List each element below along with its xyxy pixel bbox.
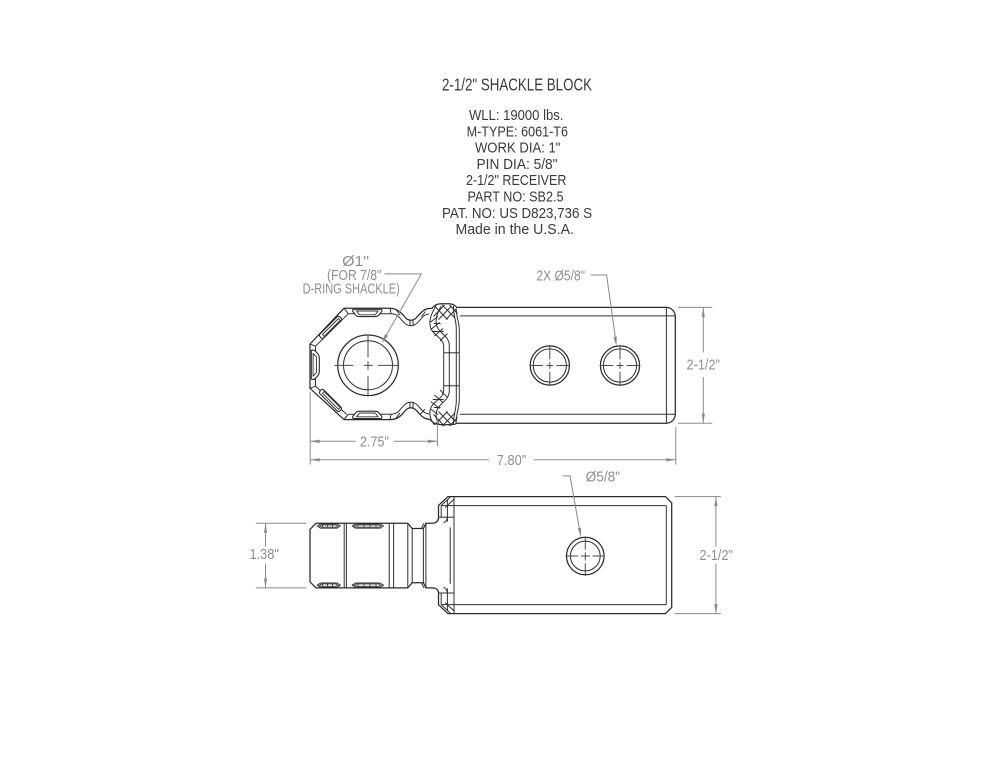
svg-text:7.80": 7.80": [497, 453, 527, 469]
svg-text:Made in the U.S.A.: Made in the U.S.A.: [455, 221, 574, 238]
svg-text:PAT. NO: US D823,736 S: PAT. NO: US D823,736 S: [442, 205, 592, 222]
svg-text:PART NO: SB2.5: PART NO: SB2.5: [468, 189, 564, 206]
svg-text:2X Ø5/8": 2X Ø5/8": [536, 269, 585, 285]
svg-text:PIN DIA: 5/8": PIN DIA: 5/8": [477, 156, 558, 173]
svg-text:2-1/2" SHACKLE BLOCK: 2-1/2" SHACKLE BLOCK: [442, 75, 592, 95]
svg-text:Ø5/8": Ø5/8": [586, 469, 621, 485]
svg-text:2-1/2" RECEIVER: 2-1/2" RECEIVER: [466, 172, 567, 189]
svg-text:2-1/2": 2-1/2": [700, 548, 734, 564]
svg-text:2-1/2": 2-1/2": [687, 358, 721, 374]
svg-text:M-TYPE: 6061-T6: M-TYPE: 6061-T6: [467, 123, 568, 140]
svg-text:WORK DIA: 1": WORK DIA: 1": [475, 140, 561, 157]
svg-text:2.75": 2.75": [360, 434, 389, 450]
svg-text:1.38": 1.38": [249, 547, 279, 563]
svg-text:D-RING SHACKLE): D-RING SHACKLE): [303, 282, 400, 298]
svg-text:WLL: 19000 lbs.: WLL: 19000 lbs.: [469, 107, 564, 124]
